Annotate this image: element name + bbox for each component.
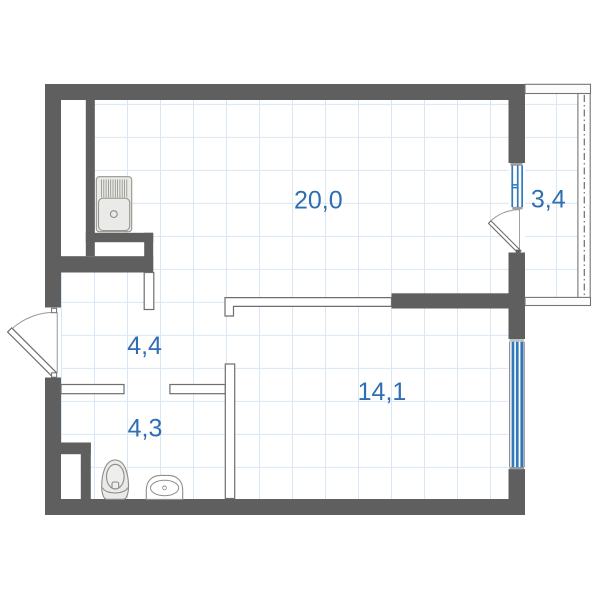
svg-text:3,4: 3,4 [531, 186, 566, 214]
svg-text:20,0: 20,0 [294, 186, 343, 214]
svg-text:14,1: 14,1 [358, 378, 407, 406]
svg-text:4,4: 4,4 [127, 332, 162, 360]
svg-text:4,3: 4,3 [128, 415, 163, 443]
